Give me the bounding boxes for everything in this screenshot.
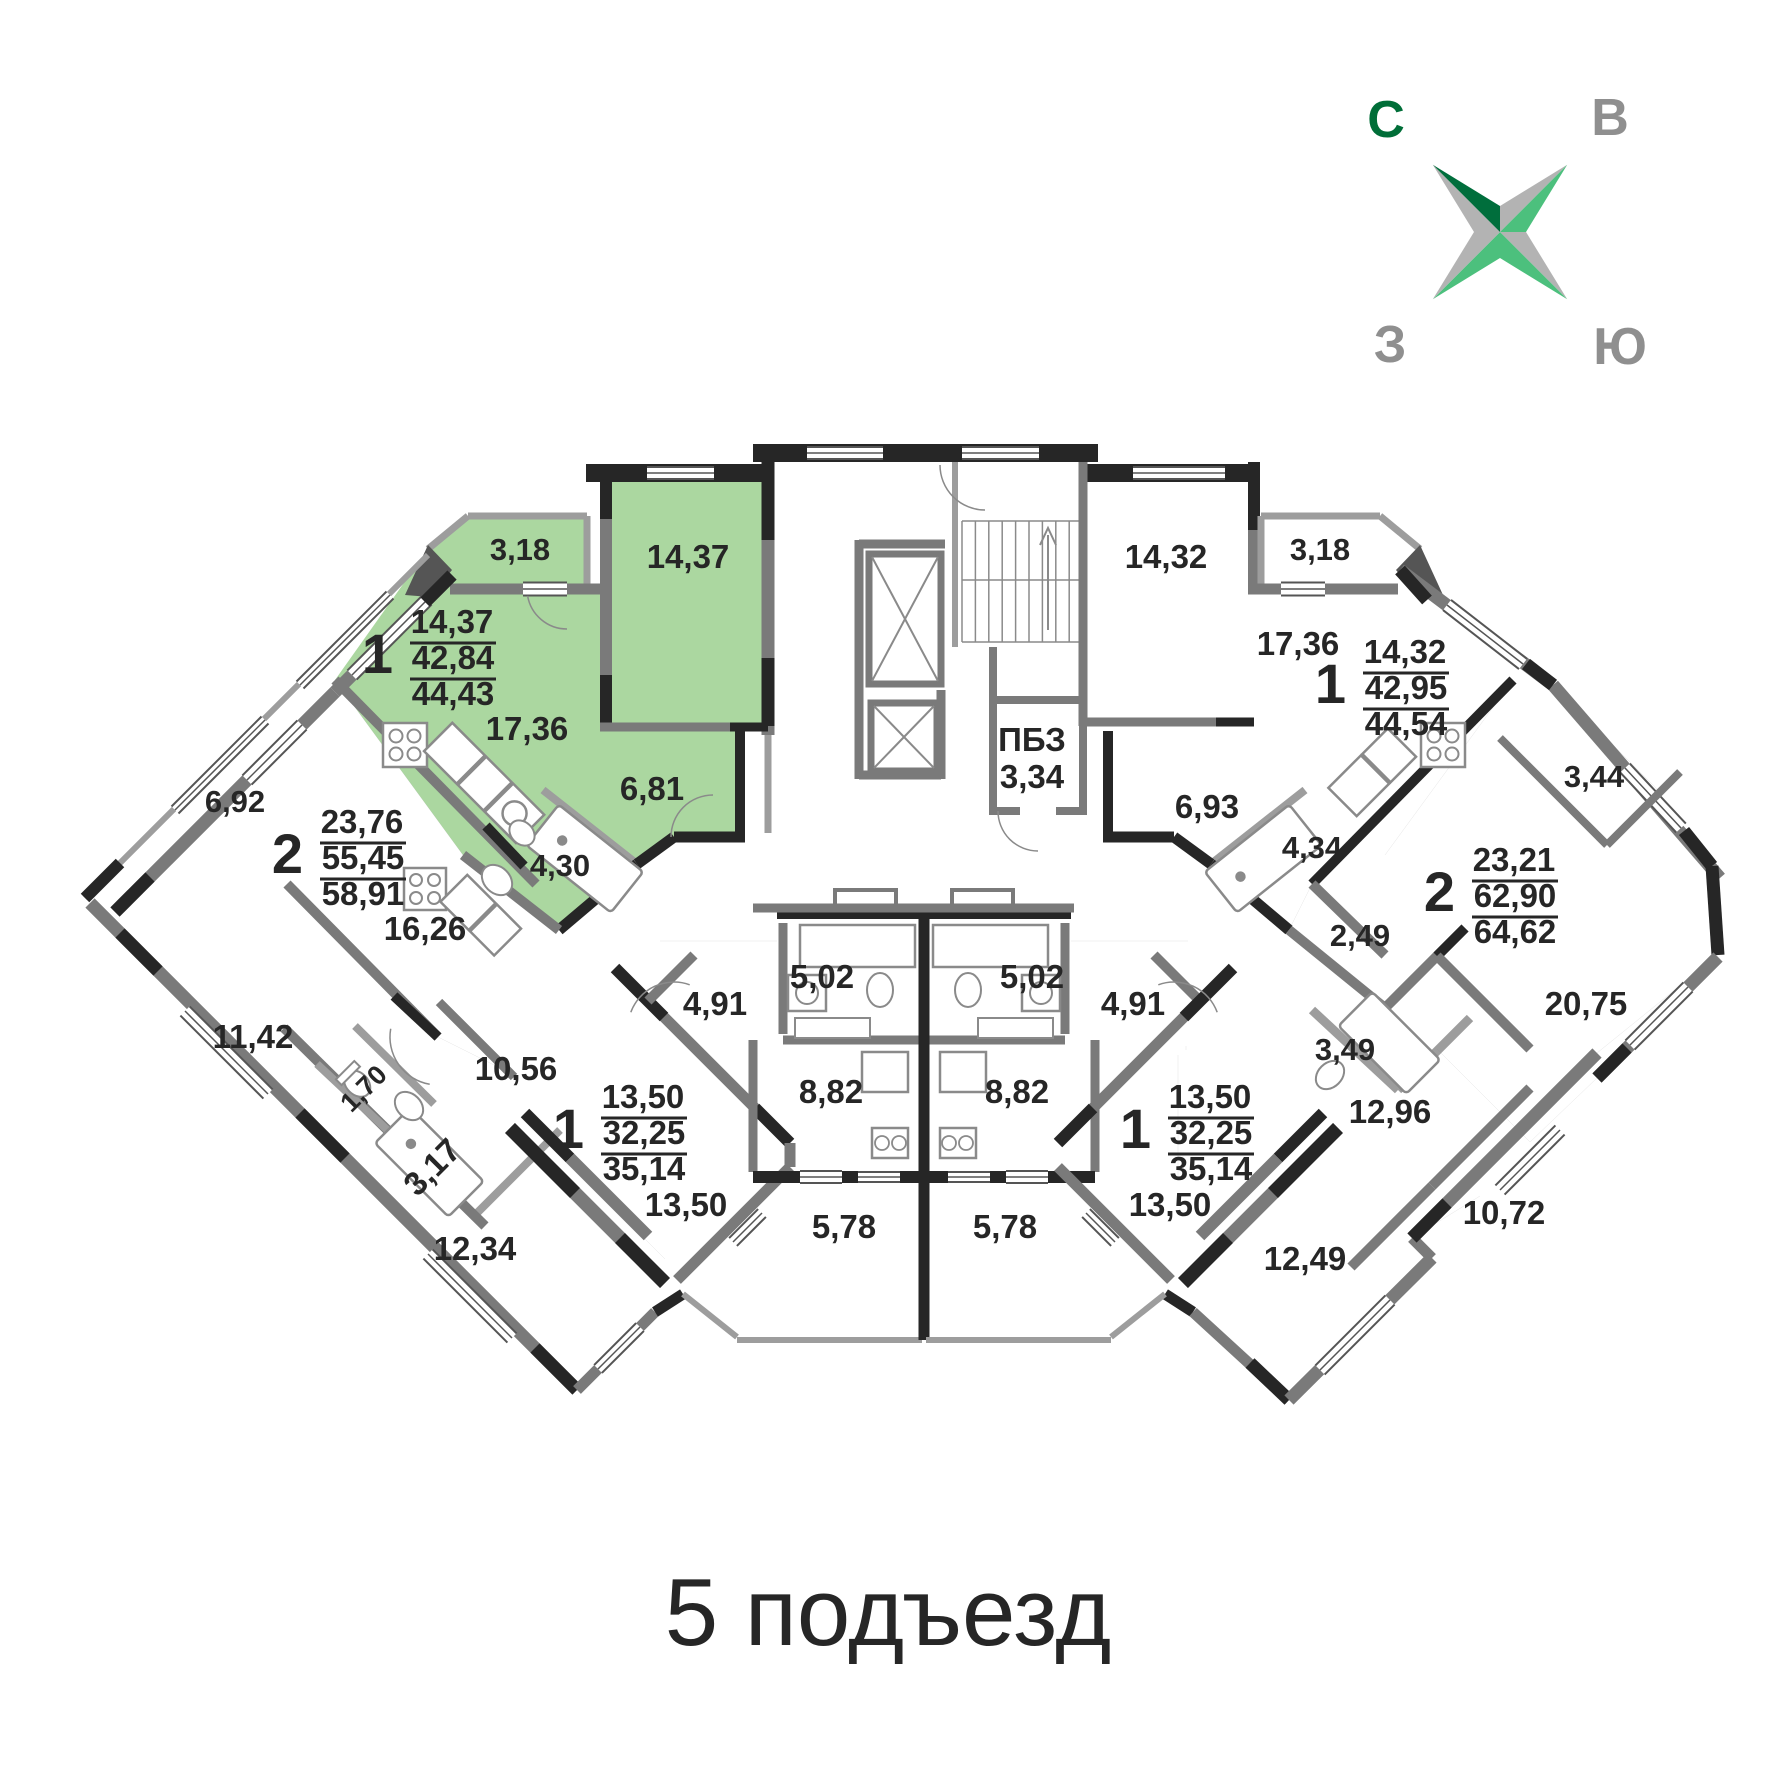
svg-text:62,90: 62,90 [1474,877,1557,914]
svg-text:1: 1 [362,622,393,685]
svg-text:4,91: 4,91 [1101,985,1165,1022]
svg-text:42,95: 42,95 [1365,669,1448,706]
svg-text:14,32: 14,32 [1364,633,1447,670]
svg-text:3,18: 3,18 [1290,532,1350,567]
svg-text:23,76: 23,76 [321,803,404,840]
svg-text:13,50: 13,50 [1169,1078,1252,1115]
svg-text:12,96: 12,96 [1349,1093,1432,1130]
svg-text:13,50: 13,50 [1129,1186,1212,1223]
svg-text:14,37: 14,37 [647,538,730,575]
svg-text:8,82: 8,82 [799,1073,863,1110]
svg-text:10,56: 10,56 [475,1050,558,1087]
svg-text:2: 2 [1424,860,1455,923]
svg-text:3,34: 3,34 [1000,758,1065,795]
svg-text:11,42: 11,42 [213,1018,294,1055]
svg-text:Ю: Ю [1593,318,1647,376]
svg-text:17,36: 17,36 [486,710,569,747]
svg-text:5,02: 5,02 [1000,958,1064,995]
svg-text:44,43: 44,43 [412,675,495,712]
svg-text:12,49: 12,49 [1264,1240,1347,1277]
svg-text:5,02: 5,02 [790,958,854,995]
svg-text:5 подъезд: 5 подъезд [665,1559,1111,1666]
svg-text:4,30: 4,30 [530,848,590,883]
svg-text:42,84: 42,84 [412,639,495,676]
svg-text:В: В [1591,89,1629,147]
svg-text:13,50: 13,50 [645,1186,728,1223]
svg-text:ПБЗ: ПБЗ [998,721,1066,758]
svg-text:1: 1 [1120,1097,1151,1160]
svg-text:8,82: 8,82 [985,1073,1049,1110]
svg-text:10,72: 10,72 [1463,1194,1546,1231]
svg-text:2: 2 [272,822,303,885]
svg-text:13,50: 13,50 [602,1078,685,1115]
svg-text:5,78: 5,78 [973,1208,1037,1245]
svg-text:6,81: 6,81 [620,770,684,807]
svg-text:23,21: 23,21 [1473,841,1556,878]
svg-text:58,91: 58,91 [322,875,405,912]
svg-text:32,25: 32,25 [603,1114,686,1151]
svg-text:20,75: 20,75 [1545,985,1628,1022]
svg-text:С: С [1367,91,1405,149]
svg-text:6,93: 6,93 [1175,788,1239,825]
svg-text:14,37: 14,37 [411,603,494,640]
svg-text:32,25: 32,25 [1170,1114,1253,1151]
svg-text:12,34: 12,34 [434,1230,517,1267]
svg-text:4,91: 4,91 [683,985,747,1022]
svg-text:3,49: 3,49 [1315,1032,1375,1067]
svg-text:2,49: 2,49 [1330,918,1390,953]
svg-text:35,14: 35,14 [603,1150,686,1187]
svg-text:5,78: 5,78 [812,1208,876,1245]
svg-text:4,34: 4,34 [1282,830,1343,865]
svg-text:6,92: 6,92 [205,784,265,819]
svg-text:44,54: 44,54 [1365,705,1448,742]
svg-text:16,26: 16,26 [384,910,467,947]
svg-text:3,44: 3,44 [1564,759,1625,794]
svg-text:З: З [1374,316,1407,374]
svg-text:3,18: 3,18 [490,532,550,567]
svg-text:55,45: 55,45 [322,839,405,876]
svg-text:1: 1 [553,1097,584,1160]
svg-text:1: 1 [1315,652,1346,715]
svg-text:35,14: 35,14 [1170,1150,1253,1187]
svg-text:64,62: 64,62 [1474,913,1557,950]
svg-text:14,32: 14,32 [1125,538,1208,575]
